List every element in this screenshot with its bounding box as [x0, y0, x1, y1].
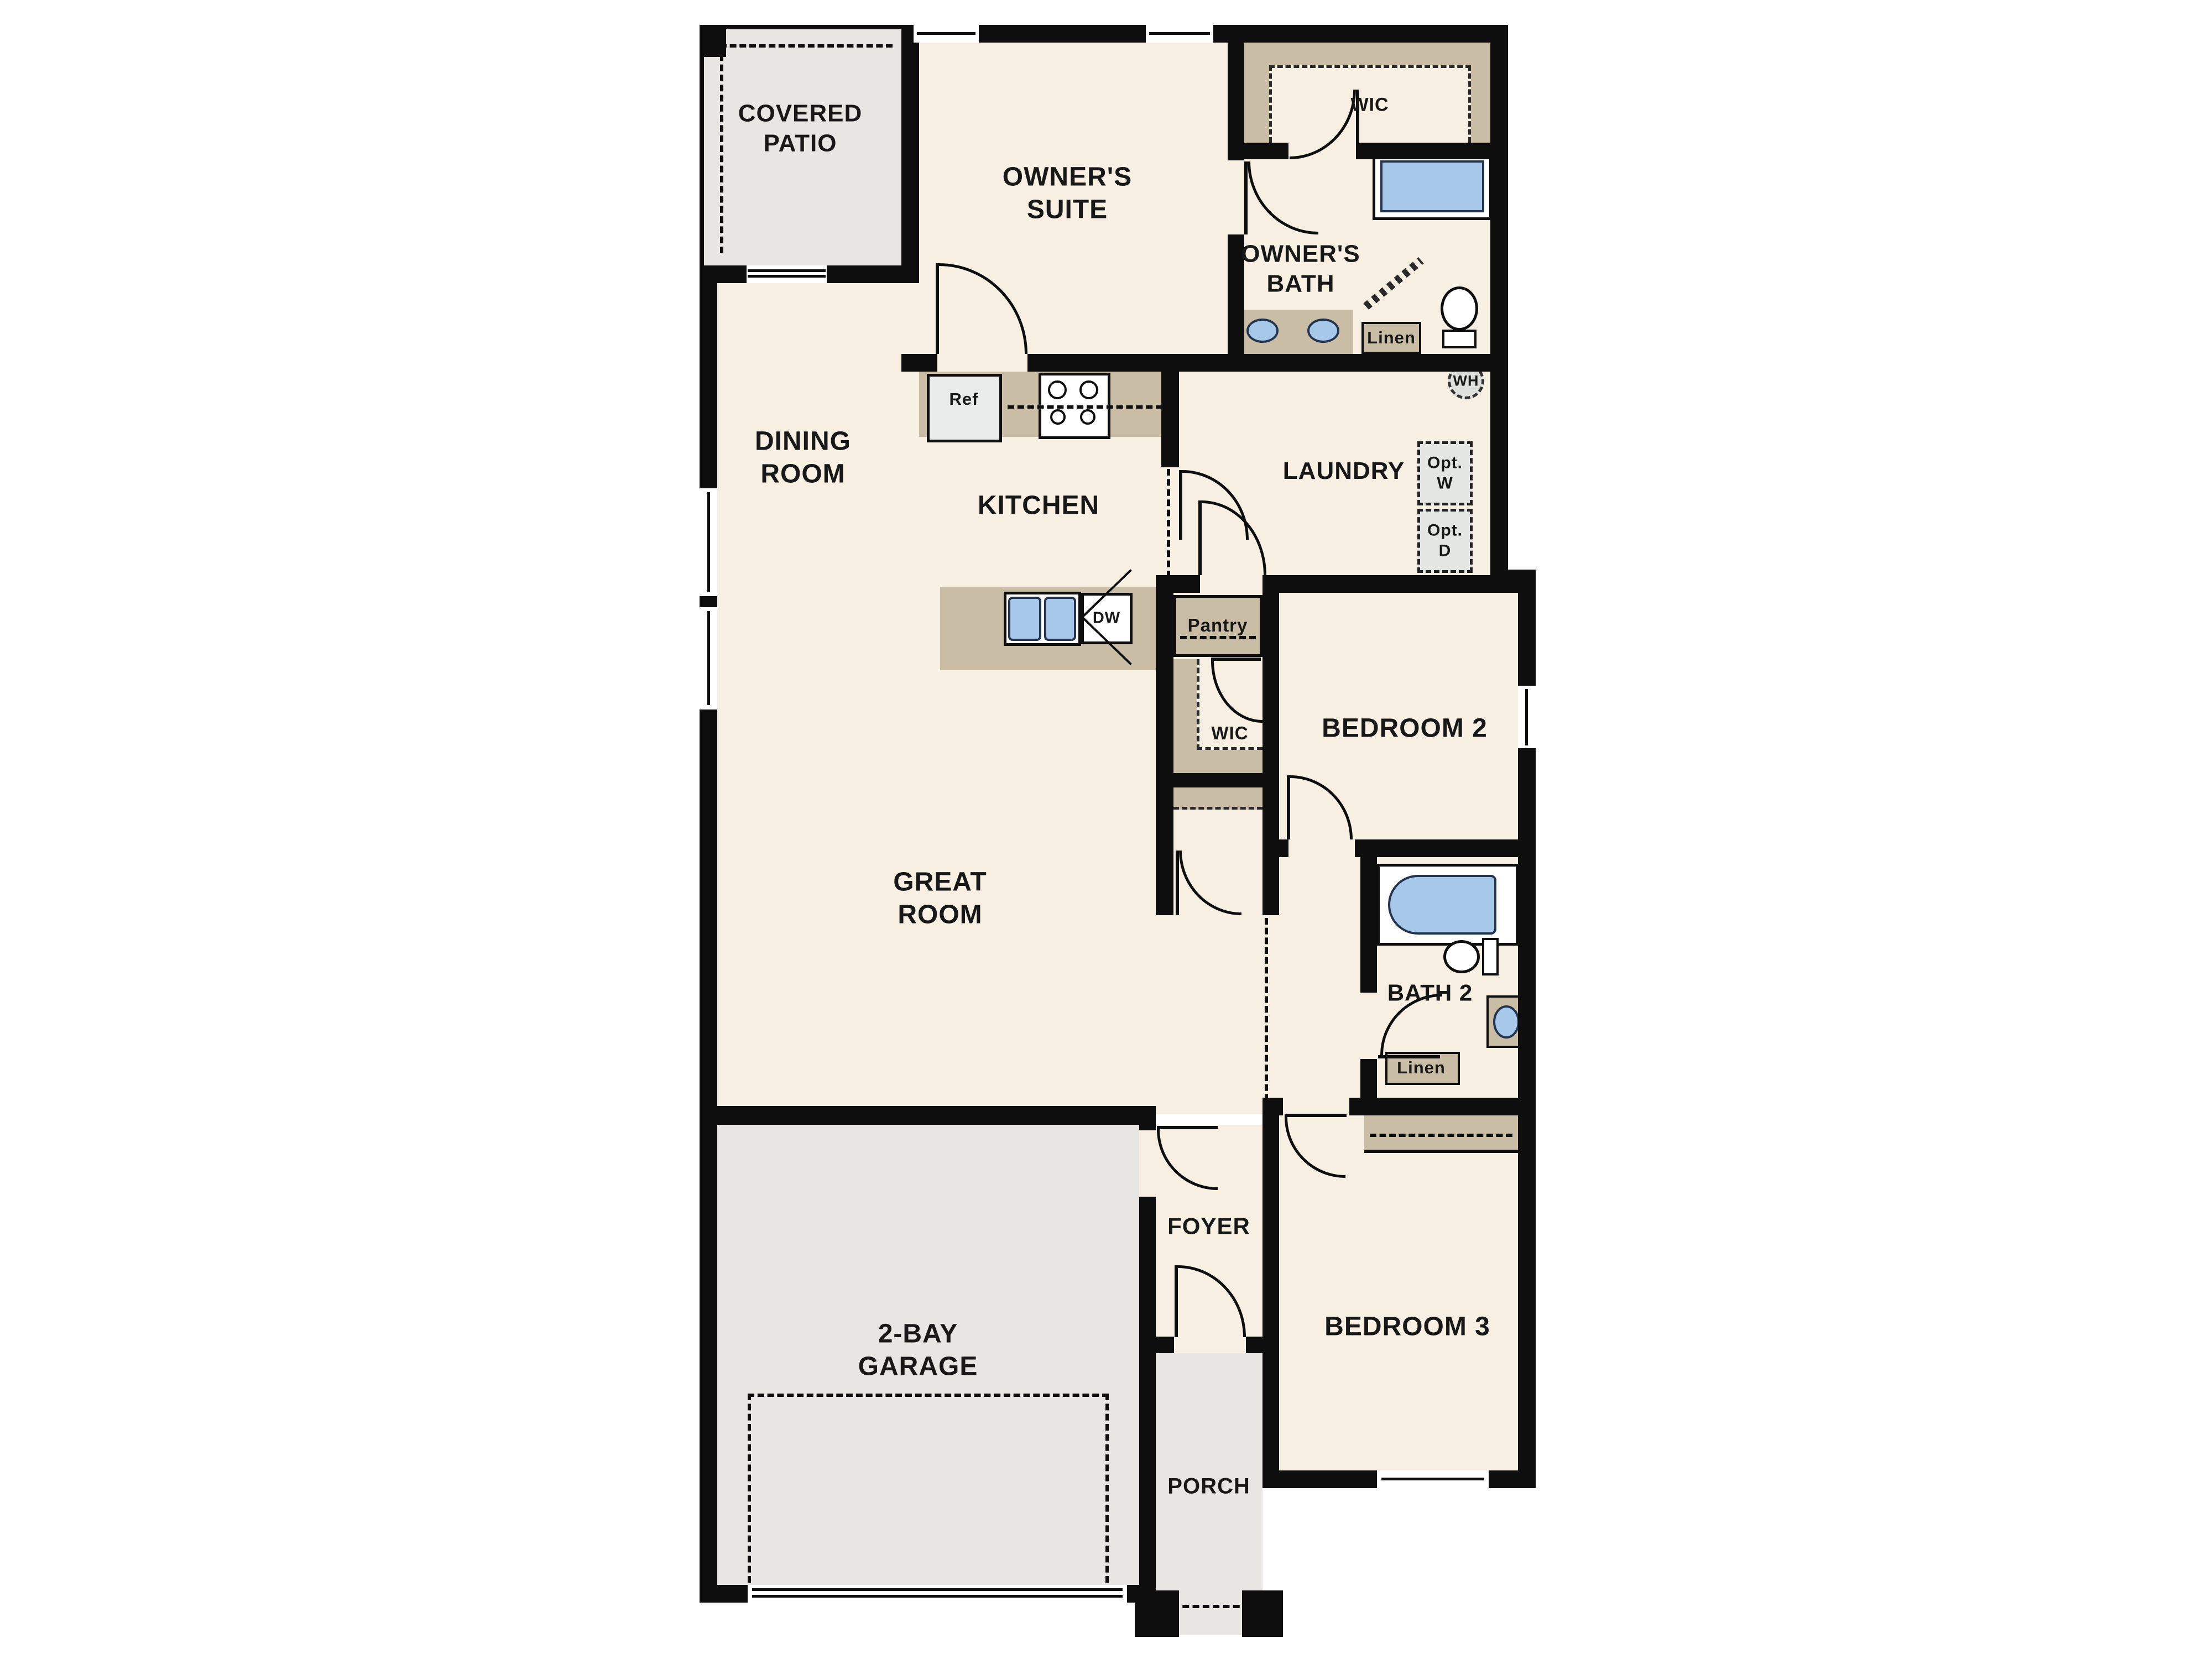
toilet-icon [1443, 940, 1480, 973]
garage-door-line [752, 1588, 1123, 1591]
counter-dashed-line [1008, 405, 1172, 409]
sliding-door-line [748, 269, 826, 272]
kitchen-opening-line [1167, 469, 1170, 577]
patio-edge [700, 25, 901, 29]
great-room-extension-floor [1156, 915, 1175, 1114]
dishwasher-label: DW [1093, 608, 1120, 628]
door-leaf [1244, 161, 1248, 234]
bedroom2-wic-label: WIC [1211, 722, 1248, 744]
owners-sink-icon [1246, 319, 1279, 343]
floor-plan: COVERED PATIO OWNER'S SUITE WIC OWNER'S … [0, 0, 2212, 1659]
window-line [917, 32, 975, 35]
wall [1228, 25, 1244, 160]
wall [1349, 1098, 1536, 1115]
burner-icon [1079, 380, 1098, 399]
coat-closet-floor [1173, 812, 1262, 849]
wall [1139, 1125, 1156, 1130]
wall [1161, 372, 1179, 467]
owners-bath-label: OWNER'S BATH [1209, 239, 1392, 298]
toilet-icon [1441, 286, 1478, 331]
wall [1279, 839, 1288, 857]
garage-parking-outline [748, 1394, 1109, 1583]
wall [901, 354, 937, 372]
owners-linen-label: Linen [1367, 327, 1416, 348]
covered-patio-label: COVERED PATIO [717, 98, 883, 158]
wall [1266, 575, 1536, 593]
garage-door [748, 1585, 1127, 1603]
burner-icon [1080, 409, 1095, 425]
wall [700, 1106, 1156, 1125]
window-line [707, 611, 710, 705]
window-line [1381, 1478, 1484, 1480]
burner-icon [1050, 409, 1066, 425]
wall [1139, 1197, 1156, 1598]
great-room-label: GREAT ROOM [857, 866, 1023, 931]
bath2-linen-label: Linen [1397, 1057, 1446, 1078]
pantry-label: Pantry [1188, 614, 1248, 637]
toilet-tank-icon [1482, 938, 1499, 975]
burner-icon [1048, 380, 1067, 399]
owners-suite-label: OWNER'S SUITE [979, 161, 1156, 226]
wall [1027, 354, 1508, 372]
window-line [1525, 689, 1528, 745]
sink-basin-icon [1044, 597, 1076, 641]
wall [1489, 1470, 1536, 1488]
shower-pan-icon [1380, 160, 1484, 212]
wall [1173, 773, 1262, 787]
foyer-label: FOYER [1167, 1212, 1250, 1240]
sink-basin-icon [1008, 597, 1041, 641]
sliding-door [747, 265, 827, 283]
front-door-gap-floor [1174, 1337, 1246, 1353]
bath2-label: BATH 2 [1386, 978, 1474, 1006]
garage-door-gap-floor [1139, 1130, 1156, 1197]
wall [1156, 575, 1173, 915]
wall [700, 265, 717, 1603]
wall [1355, 839, 1536, 857]
coat-closet-shelf [1173, 787, 1262, 810]
wall [1156, 1337, 1174, 1353]
optional-dryer-label: Opt. D [1423, 520, 1467, 561]
patio-edge [700, 25, 704, 265]
bedroom3-closet-rod [1370, 1134, 1512, 1137]
porch-label: PORCH [1167, 1473, 1250, 1500]
wall [700, 1585, 748, 1603]
window-line [1149, 32, 1210, 35]
owners-wic-label: WIC [1350, 93, 1389, 116]
wall [1244, 143, 1288, 159]
refrigerator-label: Ref [950, 389, 979, 410]
kitchen-label: KITCHEN [978, 490, 1099, 523]
bath2-sink-icon [1493, 1005, 1520, 1039]
wall [1360, 857, 1377, 993]
wall [1490, 25, 1508, 587]
owners-sink-icon [1307, 319, 1339, 343]
kitchen-passage-floor [1161, 467, 1179, 575]
wall [827, 265, 901, 283]
wall [1360, 1059, 1377, 1098]
wall [901, 25, 919, 283]
garage-label: 2-BAY GARAGE [824, 1318, 1012, 1383]
wall [1246, 1337, 1262, 1353]
wall [1262, 575, 1279, 915]
dining-room-label: DINING ROOM [720, 425, 886, 490]
window-line [707, 492, 710, 592]
bathtub-icon [1388, 875, 1496, 935]
patio-dashed-line [720, 44, 893, 48]
door-gap-floor [1228, 160, 1244, 234]
bedroom2-label: BEDROOM 2 [1322, 713, 1488, 745]
wall [1358, 143, 1490, 159]
wall [1518, 748, 1536, 1488]
porch-edge-line [1172, 1605, 1250, 1608]
water-heater-label: WH [1453, 372, 1479, 390]
toilet-tank-icon [1442, 330, 1477, 348]
bedroom3-label: BEDROOM 3 [1324, 1311, 1490, 1344]
sliding-door-line [748, 275, 826, 278]
laundry-label: LAUNDRY [1283, 456, 1405, 486]
archway-line [1265, 918, 1268, 1110]
wall [1279, 1470, 1377, 1488]
garage-door-line [752, 1595, 1123, 1598]
door-leaf [1176, 851, 1179, 915]
porch-post [1135, 1590, 1179, 1637]
optional-washer-label: Opt. W [1423, 453, 1467, 493]
wall [1262, 1112, 1279, 1488]
porch-post [1242, 1590, 1283, 1637]
